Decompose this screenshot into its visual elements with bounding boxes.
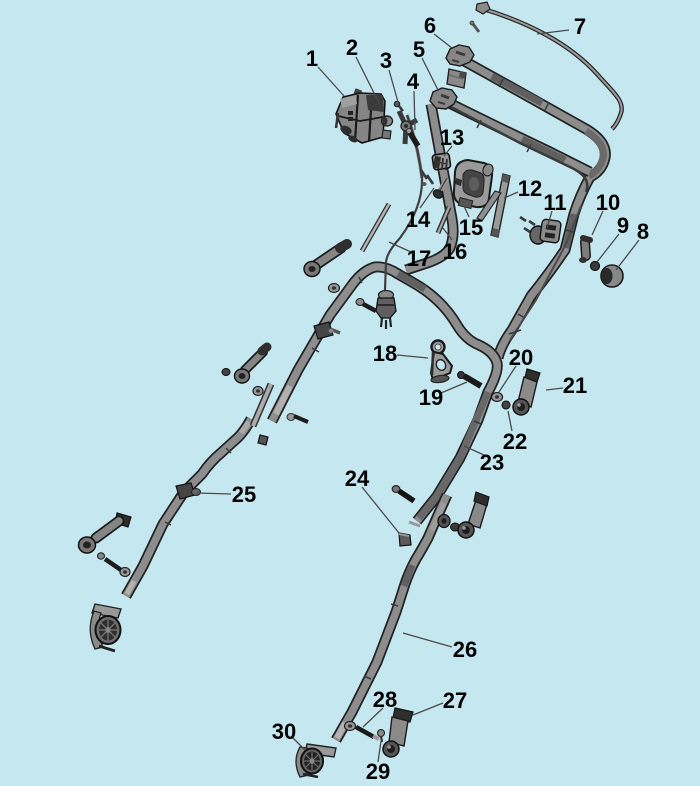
svg-text:2: 2 — [346, 35, 358, 60]
svg-text:13: 13 — [440, 125, 464, 150]
svg-text:28: 28 — [373, 687, 397, 712]
svg-text:24: 24 — [345, 466, 370, 491]
svg-text:25: 25 — [232, 482, 256, 507]
svg-text:26: 26 — [453, 637, 477, 662]
svg-text:15: 15 — [459, 215, 483, 240]
svg-text:5: 5 — [413, 37, 425, 62]
svg-text:16: 16 — [443, 239, 467, 264]
svg-text:6: 6 — [424, 13, 436, 38]
svg-text:14: 14 — [406, 207, 431, 232]
svg-text:19: 19 — [419, 385, 443, 410]
svg-text:11: 11 — [543, 190, 566, 215]
svg-text:20: 20 — [509, 345, 533, 370]
svg-text:21: 21 — [563, 373, 587, 398]
svg-text:7: 7 — [574, 14, 586, 39]
svg-text:27: 27 — [443, 688, 467, 713]
svg-text:29: 29 — [366, 759, 390, 784]
svg-text:4: 4 — [407, 69, 420, 94]
svg-text:18: 18 — [373, 341, 397, 366]
svg-text:17: 17 — [407, 246, 431, 271]
svg-text:3: 3 — [380, 48, 392, 73]
svg-text:23: 23 — [480, 450, 504, 475]
svg-text:10: 10 — [596, 190, 620, 215]
svg-text:22: 22 — [503, 429, 527, 454]
svg-text:9: 9 — [617, 213, 629, 238]
svg-text:1: 1 — [306, 46, 318, 71]
svg-text:30: 30 — [272, 719, 296, 744]
svg-text:8: 8 — [637, 219, 649, 244]
svg-text:12: 12 — [518, 176, 542, 201]
